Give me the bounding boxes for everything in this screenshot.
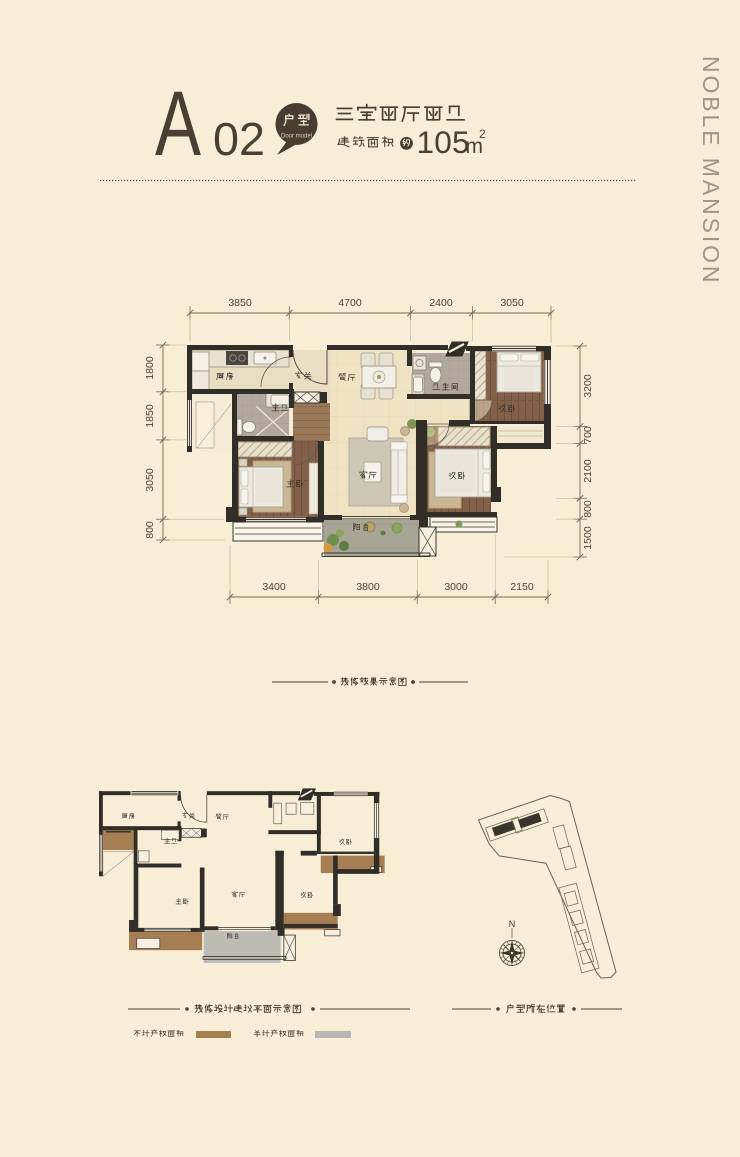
svg-text:2100: 2100 [582, 459, 594, 483]
svg-text:3850: 3850 [228, 297, 252, 309]
svg-text:A: A [155, 73, 201, 175]
svg-text:3050: 3050 [500, 297, 524, 309]
svg-text:105: 105 [417, 124, 470, 160]
svg-text:3000: 3000 [444, 581, 468, 593]
svg-text:2400: 2400 [429, 297, 453, 309]
svg-text:N: N [509, 919, 516, 929]
svg-text:NOBLE MANSION: NOBLE MANSION [698, 56, 724, 285]
svg-text:3800: 3800 [356, 581, 380, 593]
svg-text:800: 800 [144, 521, 156, 539]
svg-text:02: 02 [213, 113, 265, 165]
svg-text:1850: 1850 [144, 404, 156, 428]
svg-text:1800: 1800 [144, 356, 156, 380]
svg-text:800: 800 [582, 500, 594, 518]
svg-text:2: 2 [479, 127, 486, 141]
svg-text:700: 700 [582, 426, 594, 444]
svg-text:3050: 3050 [144, 468, 156, 492]
svg-text:3200: 3200 [582, 374, 594, 398]
svg-text:Door model: Door model [281, 134, 312, 140]
svg-text:3400: 3400 [262, 581, 286, 593]
svg-text:2150: 2150 [510, 581, 534, 593]
svg-text:1500: 1500 [582, 526, 594, 550]
svg-text:4700: 4700 [338, 297, 362, 309]
